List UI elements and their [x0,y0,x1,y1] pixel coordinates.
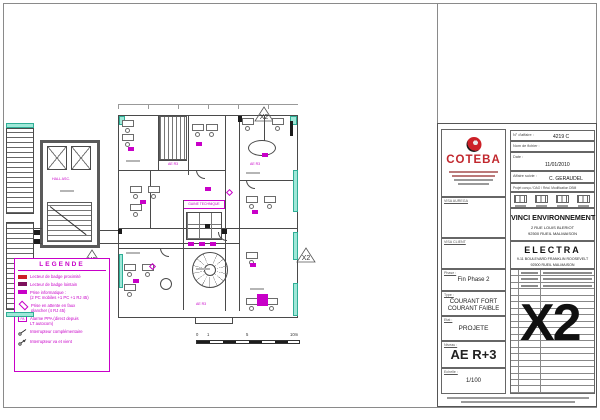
desk [124,284,136,291]
revision-desc-mark [543,278,592,280]
client-block: VINCI ENVIRONNEMENT 2 RUE LOUIS BLERIOT … [510,208,595,241]
legend-item: Lecteur de badge lointain [18,282,106,287]
revision-cell [519,367,541,372]
desk [130,186,142,193]
exterior-stair-tower [6,128,34,214]
field-value: 11/01/2010 [545,162,570,168]
company-address-line [458,183,489,185]
revision-desc-mark [543,272,592,274]
revision-cell [519,354,541,359]
phase-label: Phase : [444,271,456,275]
desk [130,204,142,211]
round-table [160,278,172,290]
revision-cell [511,309,519,314]
room-label-mark [126,252,140,254]
revision-cell [511,367,519,372]
revision-cell [511,315,519,320]
stamp-label [515,205,526,207]
project-name: ELECTRA [511,245,594,255]
room-label-mark [126,160,140,162]
power-outlet [188,242,194,246]
field-label: Affaire suivie : [513,174,537,178]
type-value: COURANT FORT COURANT FAIBLE [448,295,500,313]
revision-cell [519,361,541,366]
wall-line [240,228,298,229]
phase-box: Phase : Fin Phase 2 [441,269,506,291]
chair-icon [267,204,272,209]
desk [122,134,134,141]
desk [192,124,204,131]
field-fichier: Nom de fichier : [510,141,595,152]
revision-cell [511,276,519,281]
revision-cell [541,386,594,391]
legend-item: PA Alarme PPA (direct depuisLT autocom) [18,316,106,327]
power-outlet [257,294,268,306]
wall-line [159,160,187,161]
project-address: 92500 RUEIL MALMAISON [511,263,594,267]
circuit-tag: AE R3 [196,303,206,307]
chair-icon [275,126,280,131]
revision-cell [541,283,594,288]
wall-line [118,170,225,171]
revision-desc-mark [521,285,538,287]
echelle-label: Echelle : [444,370,458,374]
wall-line [158,115,159,170]
wall-line [150,170,151,228]
chair-icon [269,306,274,311]
chair-icon [145,272,150,277]
project-address: 9-11 BOULEVARD FRANKLIN ROOSEVELT [511,257,594,261]
stamps-row [510,192,595,208]
company-address-line [454,179,493,181]
revision-cell [541,361,594,366]
field-value: C. GERAUDEL [549,176,583,182]
window-highlight [293,232,298,260]
wall-line [264,115,265,141]
etat-box: Etat : PROJETE [441,316,506,341]
legend-title: LEGENDE [18,261,106,271]
badge-reader-distant-icon [18,282,27,286]
desk [246,196,258,203]
chair-icon [249,306,254,311]
corridor [225,115,240,311]
fine-print [441,396,595,406]
entrance [195,318,233,324]
stamp-label [578,205,589,207]
revision-cell [519,386,541,391]
legend-item: Interrupteur complémentaire [18,329,106,337]
power-outlet [250,263,256,267]
legend-item-label: Interrupteur va et vient [30,339,72,344]
wall-line [183,200,184,310]
room-label-mark [196,268,210,270]
visa-label: VISA CLIENT [444,240,466,244]
field-label: N° d'affaire : [513,133,534,137]
revision-cell [541,367,594,372]
wall-fill [34,239,40,244]
desk [246,252,258,259]
scale-label: 10m [290,333,298,337]
window-highlight [293,283,298,316]
stamps-header-label: Projet conçu / DAO / Réal. Modification … [513,186,576,190]
stairwell [159,116,187,160]
revision-cell [519,276,541,281]
client-address: 92500 RUEIL MALMAISON [511,231,594,236]
stamp-label [536,205,547,207]
revision-cell [511,386,519,391]
drawing-sheet: HALL ASC. GAINE TECHNIQUE X2 X2 X2 [0,0,600,420]
etat-value: PROJETE [459,325,489,332]
legend-item-label: Prise en attente en fauxplancher (4 RJ 4… [31,303,75,314]
company-address-line [449,171,498,173]
revision-cell [511,328,519,333]
revision-triangle-label: X2 [302,255,311,262]
wall-fill [290,121,293,136]
scale-bar: 0 1 5 10m [196,333,300,347]
revision-cell [511,270,519,275]
chair-icon [127,272,132,277]
revision-cell [541,380,594,385]
revision-cell [519,270,541,275]
window-highlight [293,170,298,212]
chair-icon [125,128,130,133]
client-address: 2 RUE LOUIS BLERIOT [511,225,594,230]
desk [124,264,136,271]
client-name: VINCI ENVIRONNEMENT [511,213,594,222]
floor-socket-icon [19,301,29,311]
legend-item-label: Alarme PPA (direct depuisLT autocom) [30,316,79,327]
circuit-tag: AE R3 [250,163,260,167]
visa-label: VISA AUREGA [444,199,468,203]
fine-print-line [461,401,575,403]
power-outlet [133,279,139,283]
revision-cell [541,374,594,379]
phase-value: Fin Phase 2 [457,277,489,283]
revision-cell [511,302,519,307]
revision-cell [511,322,519,327]
company-name: COTEBA [442,155,505,167]
chair-icon [209,132,214,137]
elevator-shaft [47,146,67,170]
desk [122,120,134,127]
core-corridor-link [100,230,118,244]
room-label-mark [246,172,260,174]
sanitary-block [186,212,222,240]
echelle-value: 1/100 [466,378,481,384]
window-highlight [6,123,34,128]
wall-fill [34,230,40,235]
coteba-logo-icon [466,137,481,152]
revision-cell [519,374,541,379]
title-block: COTEBA VISA AUREGA VISA CLIENT Phase : F… [437,123,597,407]
scale-bar-segments [196,340,300,344]
echelle-box: Echelle : 1/100 [441,368,506,394]
chair-icon [133,212,138,217]
revision-cell [511,296,519,301]
legend-item-label: Interrupteur complémentaire [30,329,83,334]
legend-item: Interrupteur va et vient [18,339,106,347]
data-outlet-icon [18,290,27,294]
revision-cell [511,335,519,340]
fine-print-line [447,397,589,399]
stamp-label [557,205,568,207]
revision-cell [511,283,519,288]
wall-fill [118,229,122,234]
field-value: 4219 C [553,134,569,140]
room-label-mark [60,190,74,192]
field-suivie: Affaire suivie : C. GERAUDEL [510,171,595,183]
legend-item-label: Prise informatique :(2 PC mobiles +1 PC … [30,290,89,301]
scale-label: 5 [246,333,248,337]
chair-icon [195,132,200,137]
wall-line [188,115,189,175]
desk [272,118,284,125]
type-box: Type : COURANT FORT COURANT FAIBLE [441,291,506,316]
etat-label: Etat : [444,318,452,322]
desk [206,124,218,131]
power-outlet [210,242,216,246]
revision-cell [541,276,594,281]
room-label-mark [250,288,264,290]
scale-label: 1 [207,333,209,337]
revision-desc-mark [521,278,538,280]
project-block: ELECTRA 9-11 BOULEVARD FRANKLIN ROOSEVEL… [510,241,595,269]
power-outlet [199,242,205,246]
desk [242,118,254,125]
visa-box: VISA CLIENT [441,238,506,269]
stamp-cell [535,195,548,203]
stamp-cell [577,195,590,203]
revision-cell [511,374,519,379]
visa-box: VISA AUREGA [441,197,506,238]
niveau-box: Niveau : AE R+3 [441,341,506,368]
stamp-cell [556,195,569,203]
power-outlet [205,187,211,191]
revision-cell [511,289,519,294]
technical-shaft-label: GAINE TECHNIQUE [183,200,225,209]
window-highlight [119,254,123,288]
revision-cell [519,283,541,288]
hall-label: HALL ASC. [52,178,70,182]
legend-item: Prise informatique :(2 PC mobiles +1 PC … [18,290,106,301]
field-date: Date : 11/01/2010 [510,152,595,171]
spiral-stair-hub [204,264,216,276]
revision-row [511,386,594,392]
revision-desc-mark [543,285,592,287]
switch-icon [18,329,27,336]
badge-reader-proximity-icon [18,275,27,279]
power-outlet [128,147,134,151]
logo-box: COTEBA [441,129,506,197]
wall-fill [205,224,210,228]
company-address-line [452,175,495,177]
revision-desc-mark [521,272,538,274]
revision-triangle: X2 [296,247,316,263]
field-affaire: N° d'affaire : 4219 C [510,130,595,141]
legend-item: Lecteur de badge proximité [18,274,106,279]
drawing-title: AE R+3 [451,347,497,362]
revision-cell [511,341,519,346]
power-outlet [262,153,268,157]
desk [264,196,276,203]
revision-cell [511,348,519,353]
power-outlet [196,142,202,146]
desk [148,186,160,193]
elevator-shaft [71,146,91,170]
floor-plan: HALL ASC. GAINE TECHNIQUE X2 X2 X2 [0,0,437,420]
circuit-tag: AE R3 [168,163,178,167]
chair-icon [133,194,138,199]
chair-icon [245,126,250,131]
chair-icon [127,292,132,297]
revision-cell [511,380,519,385]
legend-item-label: Lecteur de badge lointain [30,282,77,287]
revision-cell [541,354,594,359]
stamp-cell [514,195,527,203]
two-way-switch-icon [18,339,27,346]
revision-cell [511,361,519,366]
scale-label: 0 [196,333,198,337]
field-label: Date : [513,155,523,159]
revision-cell [541,270,594,275]
revision-cell [519,380,541,385]
wall-line [183,248,225,249]
revision-cell [511,354,519,359]
stamps-header: Projet conçu / DAO / Réal. Modification … [510,183,595,192]
field-label: Nom de fichier : [513,144,540,148]
legend-item-label: Lecteur de badge proximité [30,274,81,279]
drawing-index-code: X2 [520,297,580,349]
chair-icon [151,194,156,199]
power-outlet [252,210,258,214]
power-outlet [140,200,146,204]
chair-icon [249,204,254,209]
window-highlight [6,312,34,317]
